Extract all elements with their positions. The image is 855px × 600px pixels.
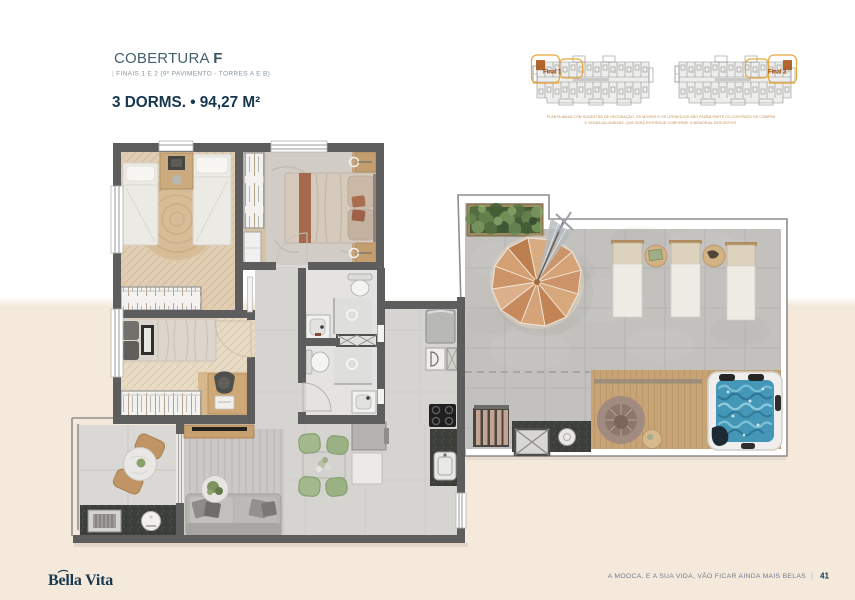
svg-text:Final 1: Final 1: [543, 69, 562, 76]
svg-text:| FINAIS 1 E 2 (9º PAVIMENTO: | FINAIS 1 E 2 (9º PAVIMENTO - TORRES A …: [112, 71, 270, 78]
svg-text:Bella Vita: Bella Vita: [48, 572, 113, 589]
svg-text:A MOOCA, E A SUA VIDA, VÃO FIC: A MOOCA, E A SUA VIDA, VÃO FICAR AINDA M…: [608, 571, 806, 580]
svg-text:Final 2: Final 2: [768, 69, 787, 76]
svg-text:E VENDA DA UNIDADE, QUE SERÁ E: E VENDA DA UNIDADE, QUE SERÁ ENTREGUE CO…: [585, 121, 738, 125]
svg-text:|: |: [811, 573, 813, 580]
svg-text:41: 41: [820, 572, 830, 581]
svg-text:PLANTA BAIXA COM SUGESTÃO DE D: PLANTA BAIXA COM SUGESTÃO DE DECORAÇÃO. …: [547, 114, 776, 119]
svg-text:COBERTURA F: COBERTURA F: [114, 50, 223, 67]
svg-text:3 DORMS. • 94,27 M²: 3 DORMS. • 94,27 M²: [112, 94, 260, 111]
